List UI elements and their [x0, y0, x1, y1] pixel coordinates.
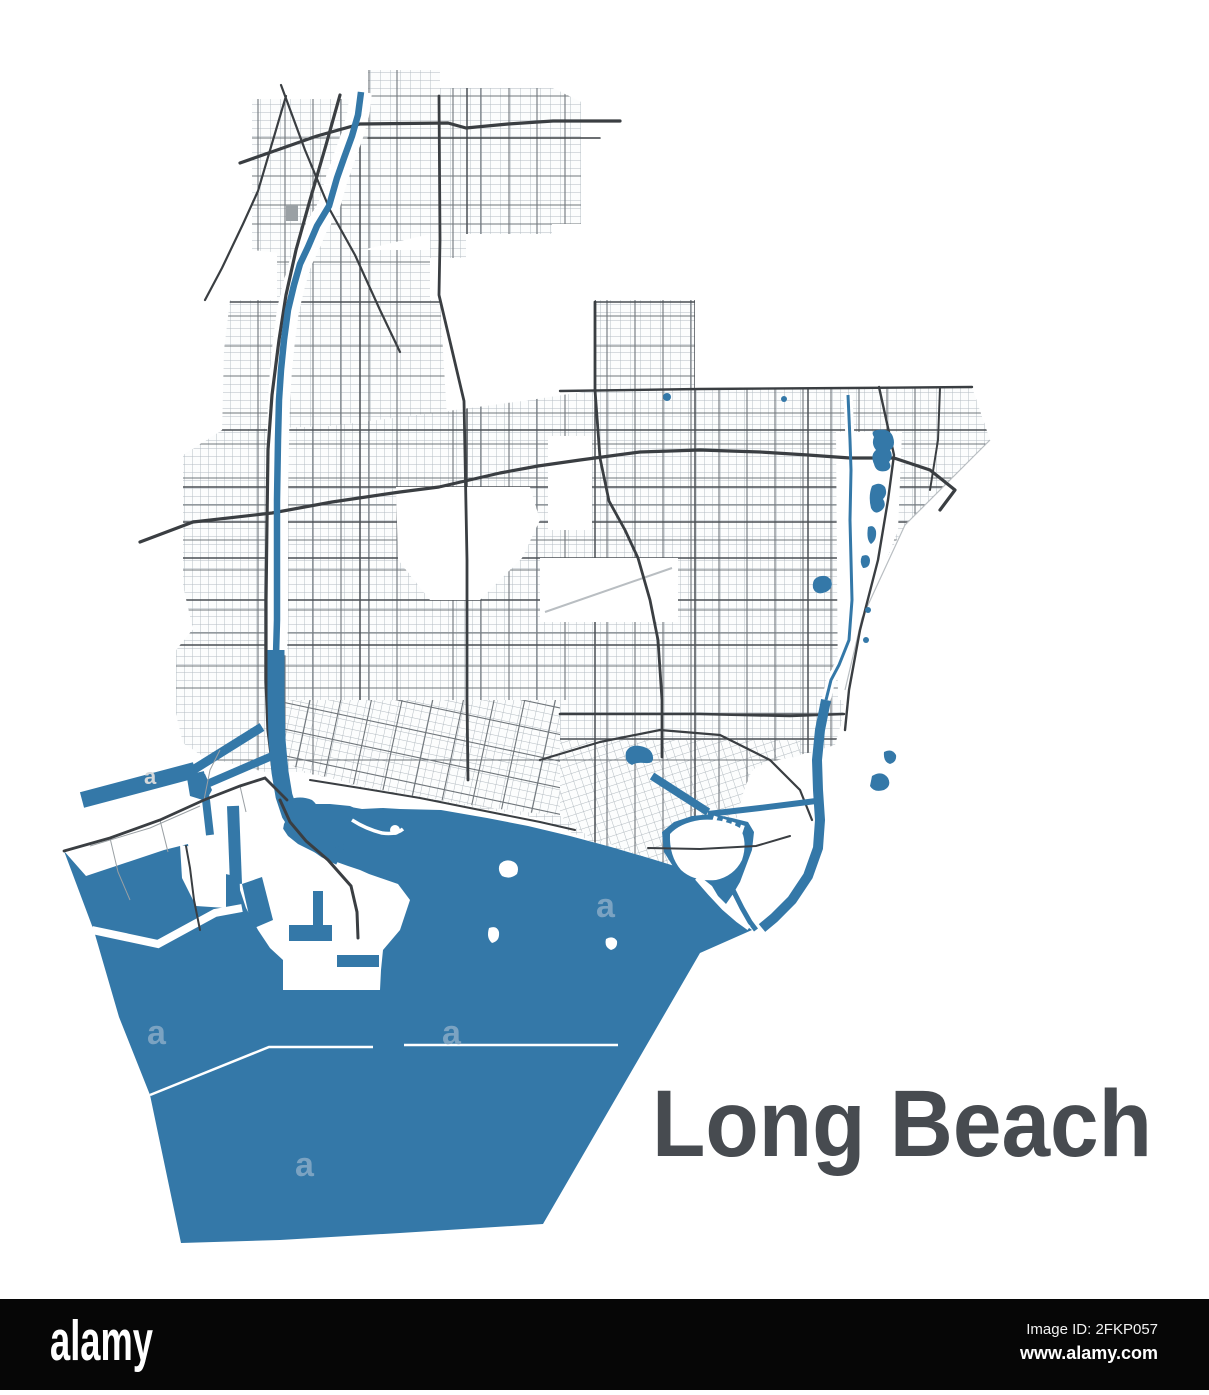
svg-text:a: a: [144, 764, 157, 789]
svg-text:alamy: alamy: [50, 1309, 153, 1373]
svg-text:www.alamy.com: www.alamy.com: [1019, 1343, 1158, 1363]
svg-text:Long Beach: Long Beach: [652, 1071, 1152, 1177]
svg-text:a: a: [147, 1014, 167, 1052]
svg-text:a: a: [442, 1014, 462, 1052]
svg-text:a: a: [295, 1146, 315, 1184]
svg-text:a: a: [596, 887, 616, 925]
svg-text:Image ID: 2FKP057: Image ID: 2FKP057: [1026, 1321, 1158, 1338]
